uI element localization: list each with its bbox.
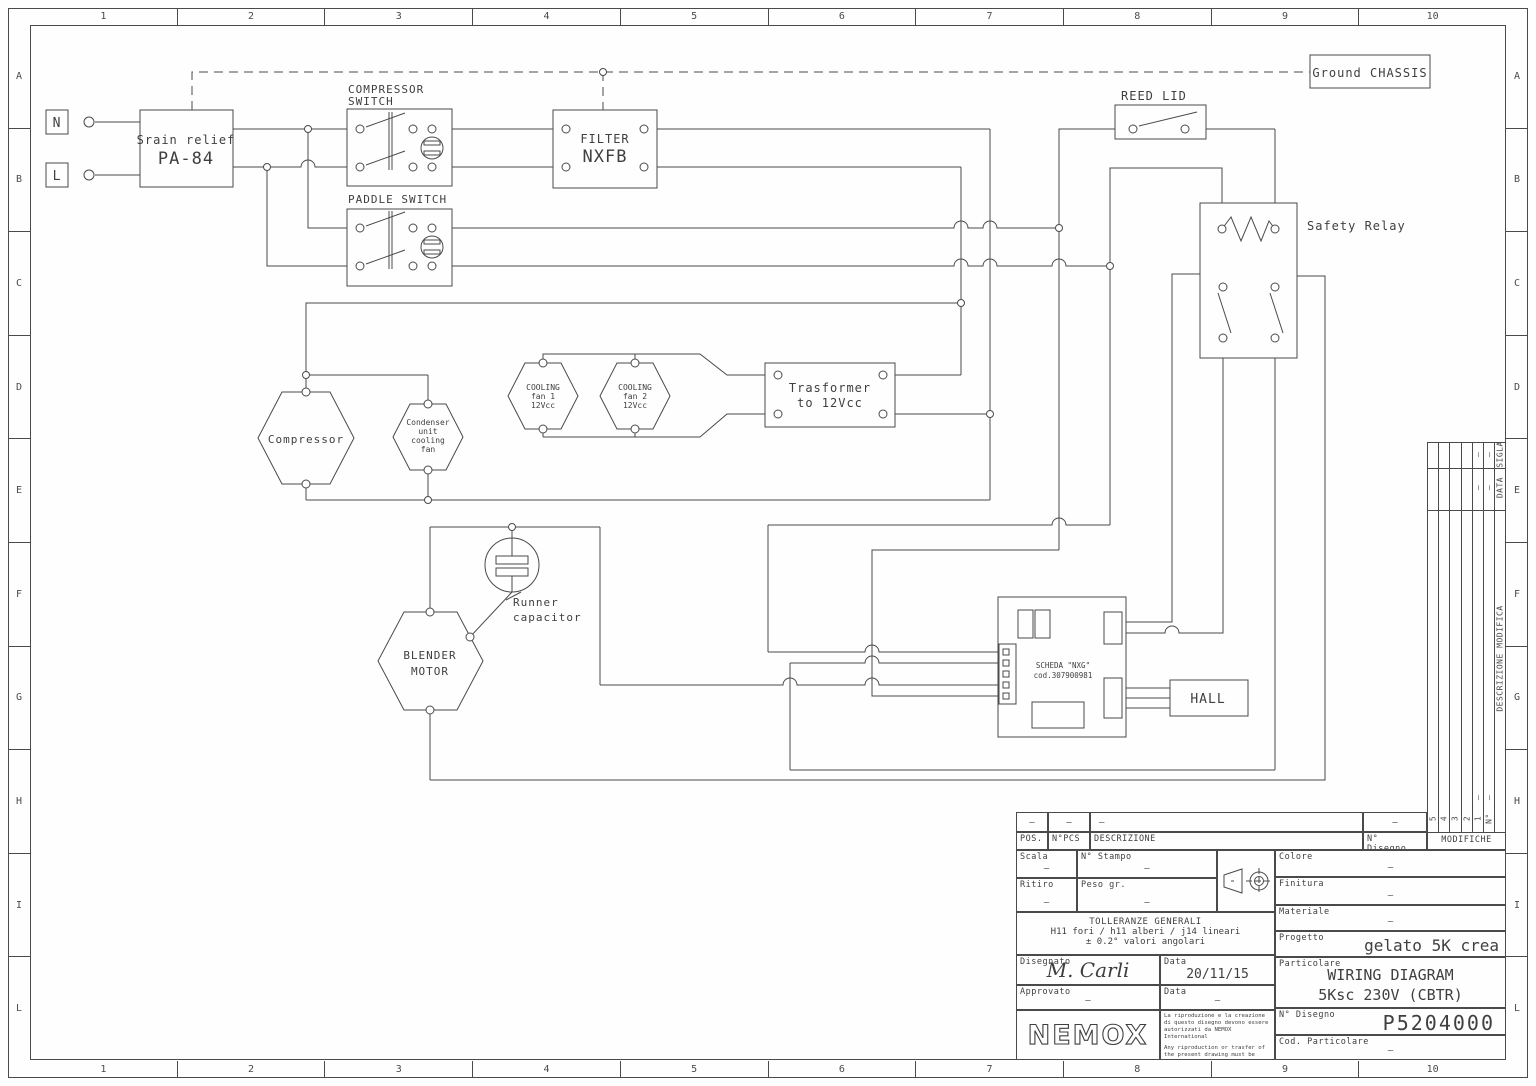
- condenser-label2: unit: [418, 427, 437, 436]
- filter-label: FILTER: [580, 132, 629, 146]
- switch-contacts: [366, 112, 1283, 333]
- paddle-switch-label: PADDLE SWITCH: [348, 193, 447, 206]
- disclaimer-english: Any riproduction or trasfer of the prese…: [1161, 1043, 1274, 1060]
- component-boxes: [46, 55, 1430, 737]
- tolleranze-title: TOLLERANZE GENERALI: [1017, 917, 1274, 927]
- runner-capacitor-label2: capacitor: [513, 611, 582, 624]
- transformer-label2: to 12Vcc: [797, 396, 863, 410]
- filter-model: NXFB: [583, 147, 628, 167]
- peso-value: —: [1078, 898, 1216, 908]
- compressor-label: Compressor: [268, 433, 344, 446]
- terminal-l-label: L: [53, 169, 62, 184]
- nemox-logo-cell: NEMOX: [1016, 1010, 1160, 1060]
- pos-header: POS.: [1017, 833, 1047, 845]
- approvato-value: —: [1017, 996, 1159, 1006]
- descrizione-value: —: [1091, 818, 1362, 828]
- ritiro-label: Ritiro: [1017, 879, 1076, 891]
- lamp-icon: [421, 137, 443, 159]
- particolare-value1: WIRING DIAGRAM: [1276, 966, 1505, 984]
- strain-relief-model: PA-84: [158, 149, 214, 169]
- progetto-value: gelato 5K crea: [1276, 936, 1499, 955]
- reed-lid-box: [1115, 105, 1206, 139]
- colore-value: —: [1276, 863, 1505, 873]
- revision-dash: —: [1485, 438, 1494, 538]
- disclaimer-cell: La riproduzione e la creazione di questo…: [1160, 1010, 1275, 1060]
- wiring-diagram-sheet: 1 2 3 4 5 6 7 8 9 10 1 2 3 4 5 6 7 8 9 1…: [0, 0, 1536, 1086]
- scheda-label: SCHEDA "NXG": [1036, 661, 1090, 670]
- particolare-value2: 5Ksc 230V (CBTR): [1276, 986, 1505, 1004]
- tolleranze-line2: H11 fori / h11 alberi / j14 lineari: [1017, 927, 1274, 937]
- safety-relay-box: [1200, 203, 1297, 358]
- condenser-label4: fan: [421, 445, 436, 454]
- modifiche-header: MODIFICHE: [1428, 833, 1505, 846]
- scala-label: Scala: [1017, 851, 1076, 863]
- fan2-label3: 12Vcc: [623, 401, 647, 410]
- tolleranze-line3: ± 0.2° valori angolari: [1017, 937, 1274, 947]
- npcs-header: N°PCS: [1049, 833, 1089, 845]
- ground-chassis-label: Ground CHASSIS: [1312, 66, 1427, 80]
- fan1-label: COOLING: [526, 383, 560, 392]
- revision-desc-header: DESCRIZIONE MODIFICA: [1496, 559, 1505, 759]
- finitura-value: —: [1276, 891, 1505, 901]
- strain-relief-label: Srain relief: [137, 133, 236, 147]
- disclaimer-italian: La riproduzione e la creazione di questo…: [1161, 1011, 1274, 1043]
- revision-data-header: DATA: [1496, 438, 1505, 538]
- nemox-logo: NEMOX: [1017, 1011, 1159, 1059]
- safety-relay-label: Safety Relay: [1307, 219, 1406, 233]
- scala-value: —: [1017, 864, 1076, 874]
- ndisegno-value: P5204000: [1383, 1011, 1495, 1035]
- nstampo-label: N° Stampo: [1078, 851, 1216, 863]
- projection-symbol-cell: [1217, 850, 1275, 912]
- nemox-logo-text: NEMOX: [1028, 1020, 1149, 1051]
- revision-dash: —: [1474, 438, 1483, 538]
- terminal-n-label: N: [53, 116, 62, 131]
- blender-motor-label2: MOTOR: [411, 665, 449, 678]
- descrizione-header: DESCRIZIONE: [1091, 833, 1362, 845]
- fan2-label2: fan 2: [623, 392, 647, 401]
- transformer-label: Trasformer: [789, 381, 871, 395]
- scheda-code: cod.307900981: [1034, 671, 1093, 680]
- colore-label: Colore: [1276, 851, 1505, 863]
- cod-particolare-value: —: [1276, 1046, 1505, 1056]
- npcs-value: —: [1049, 818, 1089, 828]
- compressor-switch-label2: SWITCH: [348, 95, 394, 108]
- lamp-icon: [421, 236, 443, 258]
- ndisegno-row-value: —: [1364, 818, 1426, 828]
- nstampo-value: —: [1078, 864, 1216, 874]
- ritiro-value: —: [1017, 898, 1076, 908]
- data1-value: 20/11/15: [1161, 967, 1274, 982]
- peso-label: Peso gr.: [1078, 879, 1216, 891]
- reed-lid-label: REED LID: [1121, 89, 1187, 103]
- blender-motor-label: BLENDER: [403, 649, 456, 662]
- hall-label: HALL: [1190, 692, 1225, 707]
- condenser-label3: cooling: [411, 436, 445, 445]
- first-angle-projection-icon: [1218, 851, 1274, 911]
- disegnato-signature: M. Carli: [1017, 958, 1159, 982]
- fan1-label3: 12Vcc: [531, 401, 555, 410]
- finitura-label: Finitura: [1276, 878, 1505, 890]
- fan1-label2: fan 1: [531, 392, 555, 401]
- materiale-value: —: [1276, 917, 1505, 927]
- ndisegno-header: N° Disegno: [1364, 833, 1426, 850]
- fan2-label: COOLING: [618, 383, 652, 392]
- condenser-label: Condenser: [406, 418, 450, 427]
- transformer-box: [765, 363, 895, 427]
- runner-capacitor-label: Runner: [513, 596, 559, 609]
- pos-value: —: [1017, 818, 1047, 828]
- tolleranze-cell: TOLLERANZE GENERALI H11 fori / h11 alber…: [1016, 912, 1275, 955]
- data2-value: —: [1161, 996, 1274, 1006]
